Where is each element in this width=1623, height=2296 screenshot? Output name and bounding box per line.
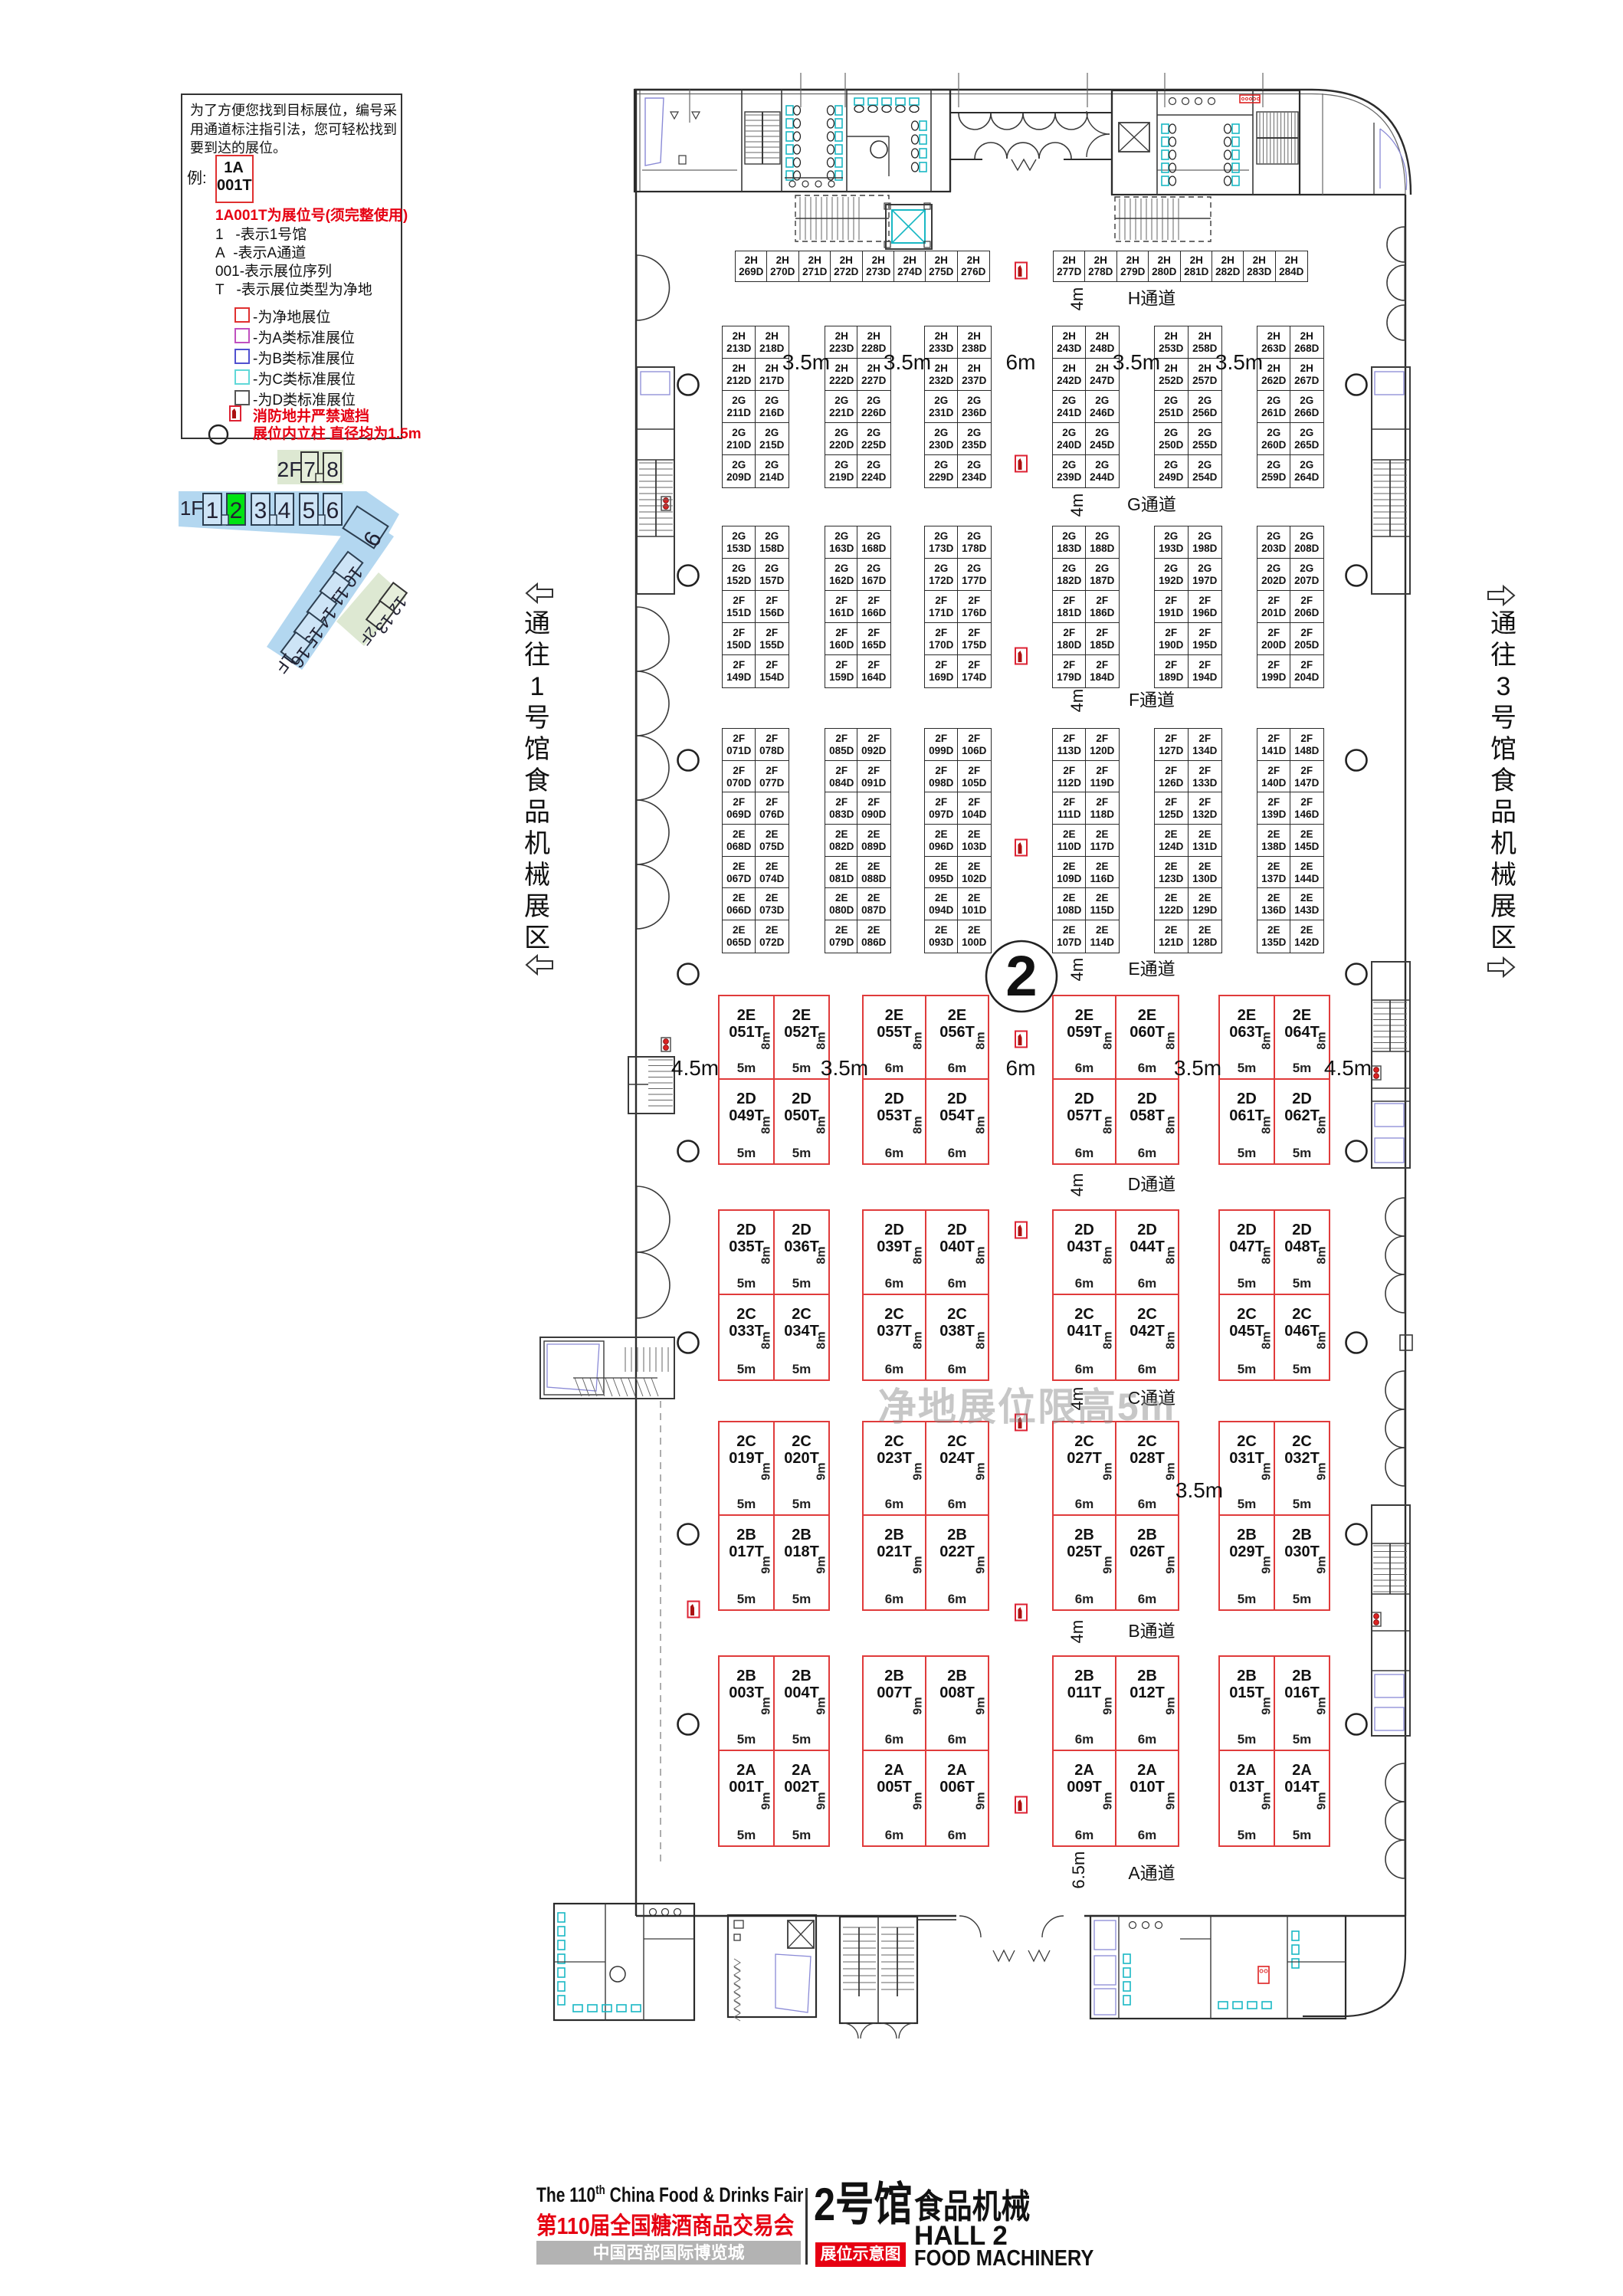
svg-text:5: 5 xyxy=(303,498,316,523)
svg-text:4: 4 xyxy=(278,498,291,523)
svg-text:1F: 1F xyxy=(180,497,203,520)
svg-text:1: 1 xyxy=(206,498,219,523)
svg-text:6: 6 xyxy=(326,498,339,523)
svg-text:2: 2 xyxy=(230,498,243,523)
svg-text:8: 8 xyxy=(326,458,339,481)
svg-text:2F: 2F xyxy=(277,458,303,481)
svg-text:3: 3 xyxy=(254,498,267,523)
svg-text:7: 7 xyxy=(303,458,316,481)
